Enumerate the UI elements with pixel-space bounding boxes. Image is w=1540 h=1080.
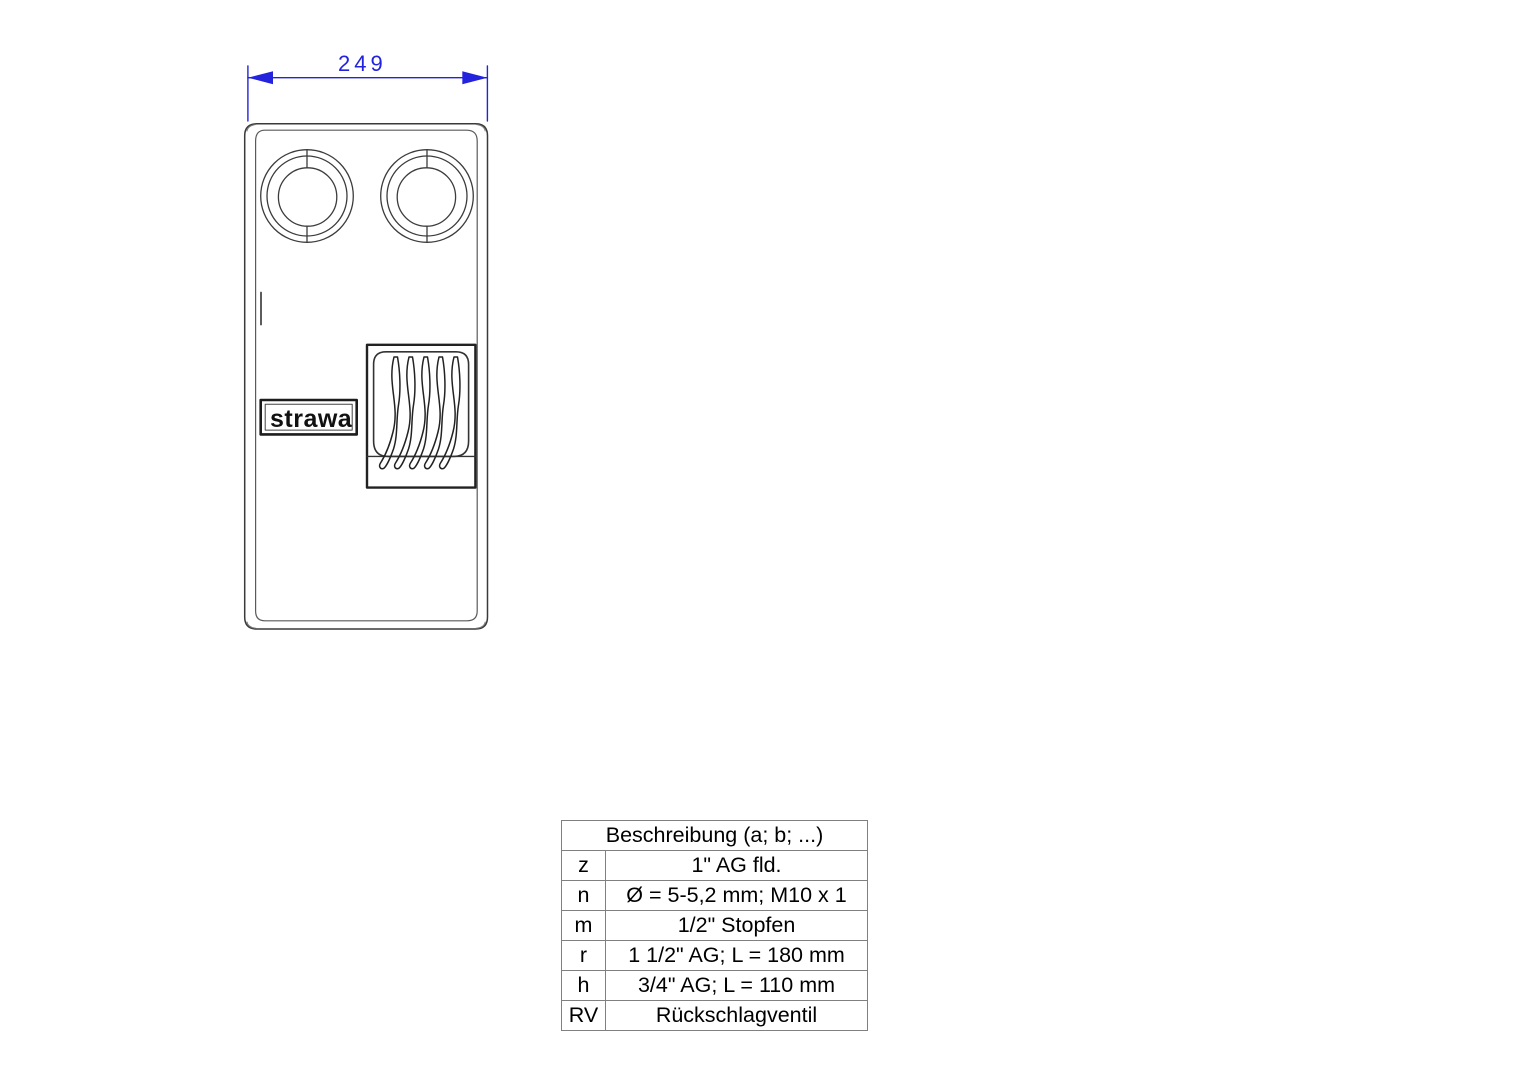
svg-text:strawa: strawa xyxy=(270,405,353,433)
svg-text:249: 249 xyxy=(338,51,387,76)
